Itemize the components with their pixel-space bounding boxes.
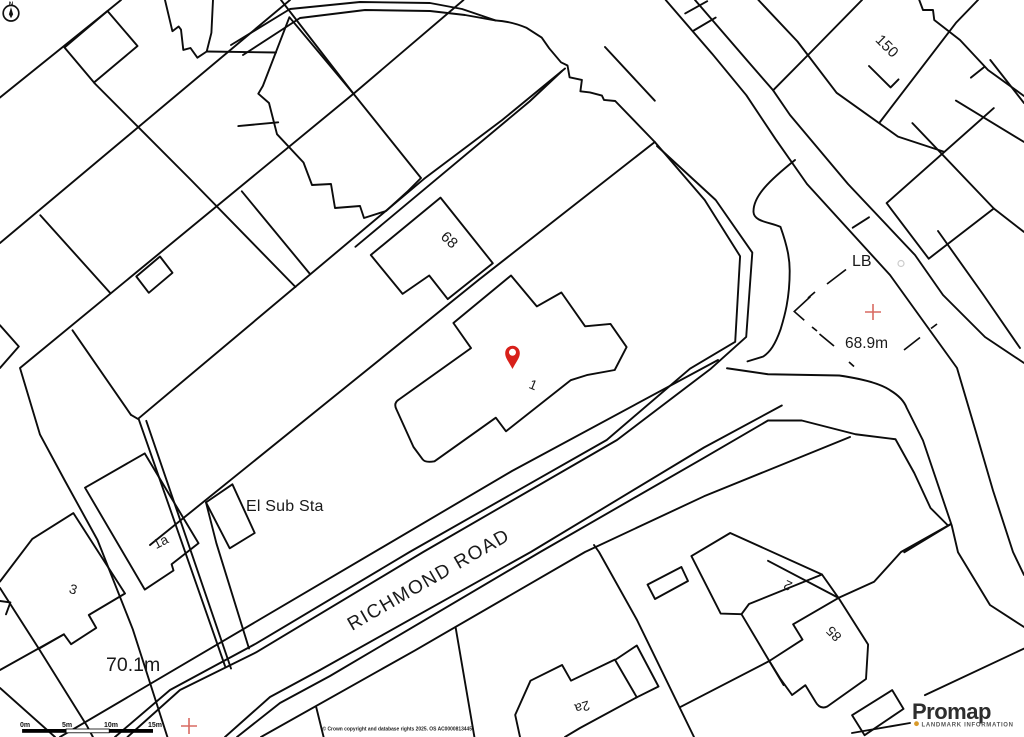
svg-text:0m: 0m [20, 722, 30, 729]
svg-text:Promap: Promap [912, 699, 991, 724]
svg-text:N: N [9, 2, 13, 8]
svg-text:5m: 5m [62, 722, 72, 729]
svg-text:El Sub Sta: El Sub Sta [246, 498, 324, 515]
svg-text:68.9m: 68.9m [845, 335, 888, 352]
svg-text:LANDMARK INFORMATION: LANDMARK INFORMATION [922, 723, 1014, 729]
svg-text:LB: LB [852, 253, 872, 270]
svg-text:15m: 15m [148, 722, 162, 729]
svg-text:© Crown copyright and database: © Crown copyright and database rights 20… [323, 726, 473, 733]
svg-text:10m: 10m [104, 722, 118, 729]
svg-text:70.1m: 70.1m [106, 654, 160, 676]
